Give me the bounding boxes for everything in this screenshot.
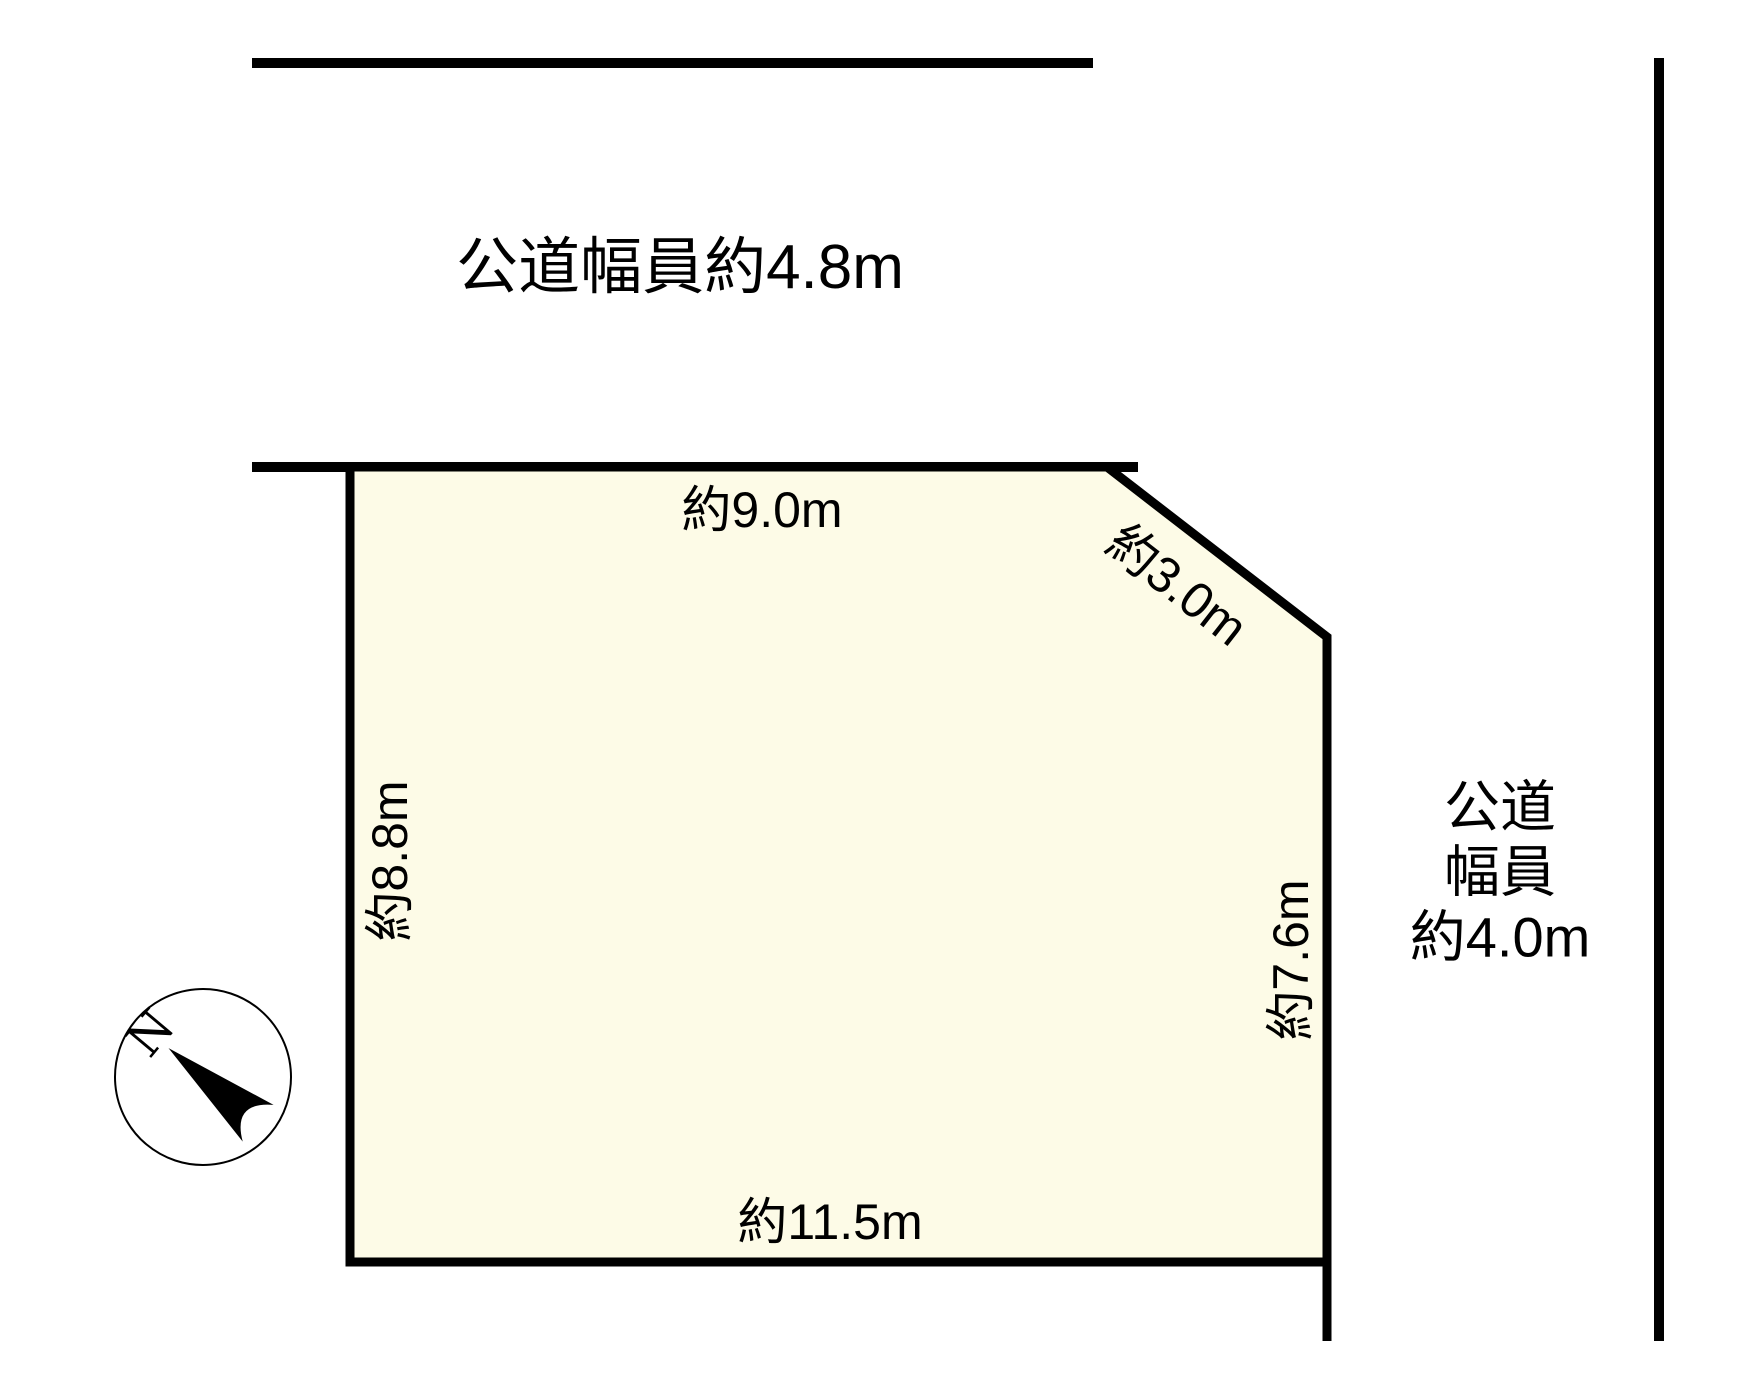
land-plot-diagram: N 公道幅員約4.8m 公道 幅員 約4.0m 約9.0m 約3.0m 約8.8… [0, 0, 1739, 1400]
plot-plan-svg: N [0, 0, 1739, 1400]
right-road-width-label-line3: 約4.0m [1410, 905, 1591, 970]
top-road-width-label: 公道幅員約4.8m [456, 237, 904, 299]
right-road-width-label-line1: 公道 [1410, 775, 1591, 840]
dimension-bottom-edge: 約11.5m [737, 1197, 922, 1247]
compass-rose: N [73, 948, 327, 1201]
right-road-width-label-line2: 幅員 [1410, 840, 1591, 905]
right-road-width-label: 公道 幅員 約4.0m [1410, 775, 1591, 970]
dimension-right-edge: 約7.6m [1266, 879, 1316, 1040]
dimension-left-edge: 約8.8m [365, 780, 415, 941]
dimension-top-edge: 約9.0m [681, 485, 842, 535]
